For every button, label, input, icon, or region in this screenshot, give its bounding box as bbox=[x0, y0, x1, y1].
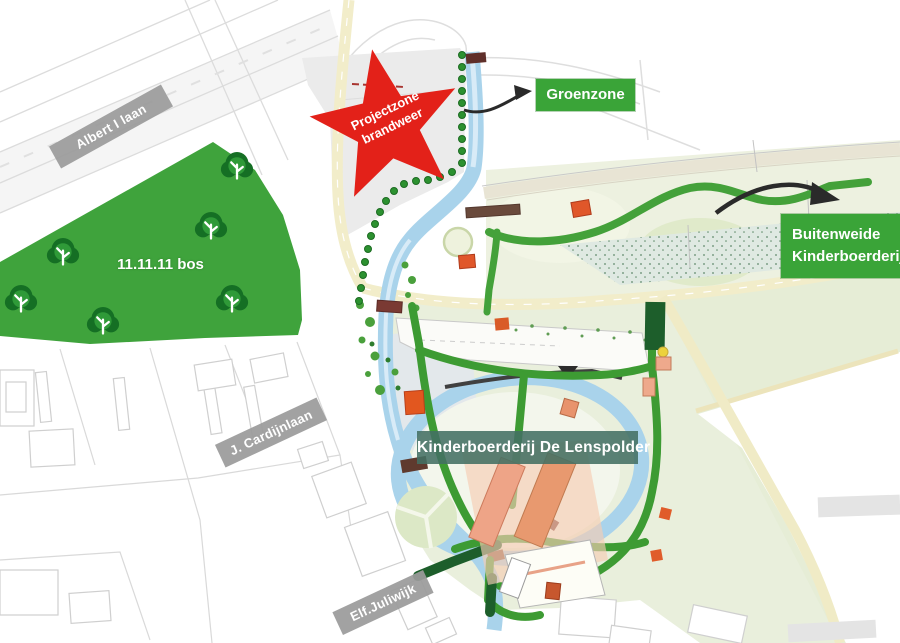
zone-label-buitenweide: Buitenweide Kinderboerderij bbox=[781, 214, 900, 278]
farm-gate-building bbox=[645, 302, 666, 350]
zone-label-bos: 11.11.11 bos bbox=[108, 256, 213, 273]
zone-label-groenzone: Groenzone bbox=[536, 79, 635, 111]
buitenweide-line2: Kinderboerderij bbox=[792, 246, 900, 268]
site-plan: Albert I laan J. Cardijnlaan Elf.Juliwij… bbox=[0, 0, 900, 643]
zone-label-kinderboerderij: Kinderboerderij De Lenspolder bbox=[417, 431, 638, 464]
buitenweide-line1: Buitenweide bbox=[792, 224, 900, 246]
roundabout bbox=[395, 486, 457, 548]
